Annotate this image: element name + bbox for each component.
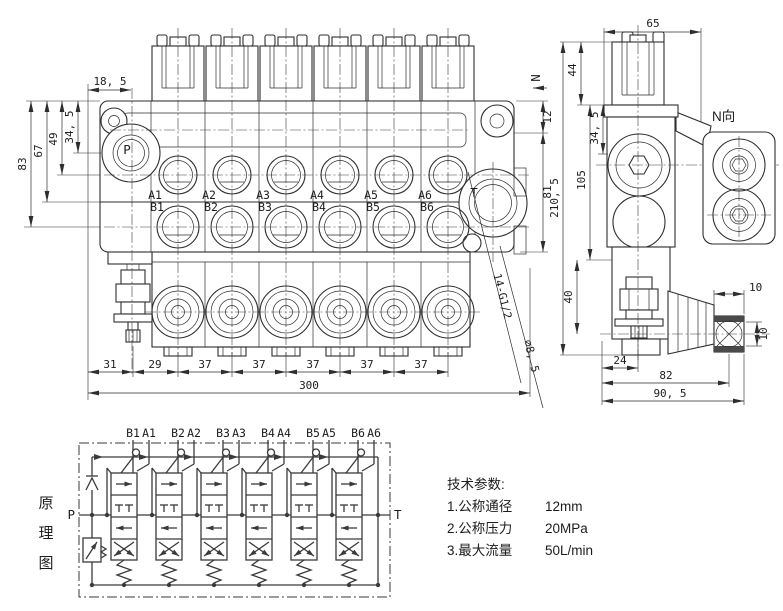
dim-37-1: 37	[198, 358, 211, 371]
spec-2-value: 20MPa	[545, 521, 588, 536]
end-caps-row	[152, 35, 474, 101]
port-label-b1: B1	[150, 200, 164, 214]
tech-specs: 技术参数: 1.公称通径 12mm 2.公称压力 20MPa 3.最大流量 50…	[447, 476, 593, 558]
dim-24: 24	[613, 354, 627, 367]
port-label-b3: B3	[258, 200, 272, 214]
relief-valve-adjuster	[108, 252, 152, 342]
tech-specs-title: 技术参数:	[447, 476, 505, 492]
dim-82: 82	[659, 369, 672, 382]
port-label-b4: B4	[312, 200, 326, 214]
n-view-letter: N	[528, 74, 543, 82]
dim-18-5: 18, 5	[93, 75, 126, 88]
side-lower-boss	[613, 196, 665, 248]
spec-3-name: 3.最大流量	[447, 543, 512, 558]
dim-side-34-5: 34, 5	[588, 111, 601, 144]
schematic-title-char-3: 图	[38, 555, 53, 572]
hole-callout: ∅8, 5	[521, 339, 542, 374]
technical-drawing-sheet: A1 A2 A3 A4 A5 A6 B1 B2 B3 B4 B5 B6 P T …	[0, 0, 783, 611]
sch-label-b3: B3	[216, 426, 230, 440]
n-view-label: N向	[712, 109, 735, 124]
dim-37-5: 37	[414, 358, 427, 371]
port-label-b2: B2	[204, 200, 218, 214]
dim-37-2: 37	[252, 358, 265, 371]
sch-label-b4: B4	[261, 426, 275, 440]
schematic-title-char-2: 理	[38, 525, 53, 542]
hydraulic-schematic: 原 理 图 B1 A1 B2 A2 B3 A3 B4 A4 B5 A5 B6 A…	[38, 426, 402, 597]
sch-label-a3: A3	[232, 426, 246, 440]
dim-29: 29	[148, 358, 161, 371]
sch-label-b6: B6	[351, 426, 365, 440]
dim-65: 65	[646, 17, 659, 30]
dim-10-top: 10	[749, 281, 762, 294]
dim-37-3: 37	[306, 358, 319, 371]
valve-drawing: A1 A2 A3 A4 A5 A6 B1 B2 B3 B4 B5 B6 P T …	[0, 0, 783, 611]
port-label-b5: B5	[366, 200, 380, 214]
sch-label-b5: B5	[306, 426, 320, 440]
port-label-p: P	[123, 142, 131, 157]
dim-67: 67	[32, 144, 45, 157]
bolt-ear-top-right	[481, 105, 513, 137]
dim-44: 44	[566, 63, 579, 77]
sch-label-a4: A4	[277, 426, 291, 440]
dim-90-5: 90, 5	[653, 387, 686, 400]
sch-port-t: T	[394, 507, 402, 522]
spec-1-name: 1.公称通径	[447, 499, 512, 514]
spec-2-name: 2.公称压力	[447, 521, 512, 536]
check-valve	[86, 457, 98, 515]
relief-valve	[83, 515, 106, 585]
dim-300: 300	[299, 379, 319, 392]
sch-label-a6: A6	[367, 426, 381, 440]
dim-10-side: 10	[757, 327, 770, 340]
dim-105: 105	[575, 170, 588, 190]
dim-83: 83	[16, 157, 29, 170]
dim-37-4: 37	[360, 358, 373, 371]
dim-210-5: 210, 5	[548, 178, 561, 218]
lever-bellows-joint	[668, 291, 744, 354]
dim-49: 49	[47, 132, 60, 145]
side-flange	[604, 105, 678, 117]
schematic-title-char-1: 原	[38, 495, 53, 512]
spec-1-value: 12mm	[545, 499, 583, 514]
sch-label-a2: A2	[187, 426, 201, 440]
dim-12: 12	[541, 110, 554, 123]
n-view-arrow: N	[528, 74, 547, 88]
dim-40: 40	[562, 290, 575, 303]
sch-label-b1: B1	[126, 426, 140, 440]
sch-label-b2: B2	[171, 426, 185, 440]
dim-31: 31	[103, 358, 116, 371]
thread-callout: 14-G1/2	[490, 272, 514, 320]
sch-label-a1: A1	[142, 426, 156, 440]
spec-3-value: 50L/min	[545, 543, 593, 558]
lower-housing	[152, 252, 474, 356]
n-direction-view: N向	[703, 109, 775, 244]
dim-34-5: 34, 5	[63, 110, 76, 143]
sch-label-a5: A5	[322, 426, 336, 440]
port-label-b6: B6	[420, 200, 434, 214]
sch-port-p: P	[67, 507, 75, 522]
front-view: A1 A2 A3 A4 A5 A6 B1 B2 B3 B4 B5 B6 P T …	[16, 28, 554, 408]
